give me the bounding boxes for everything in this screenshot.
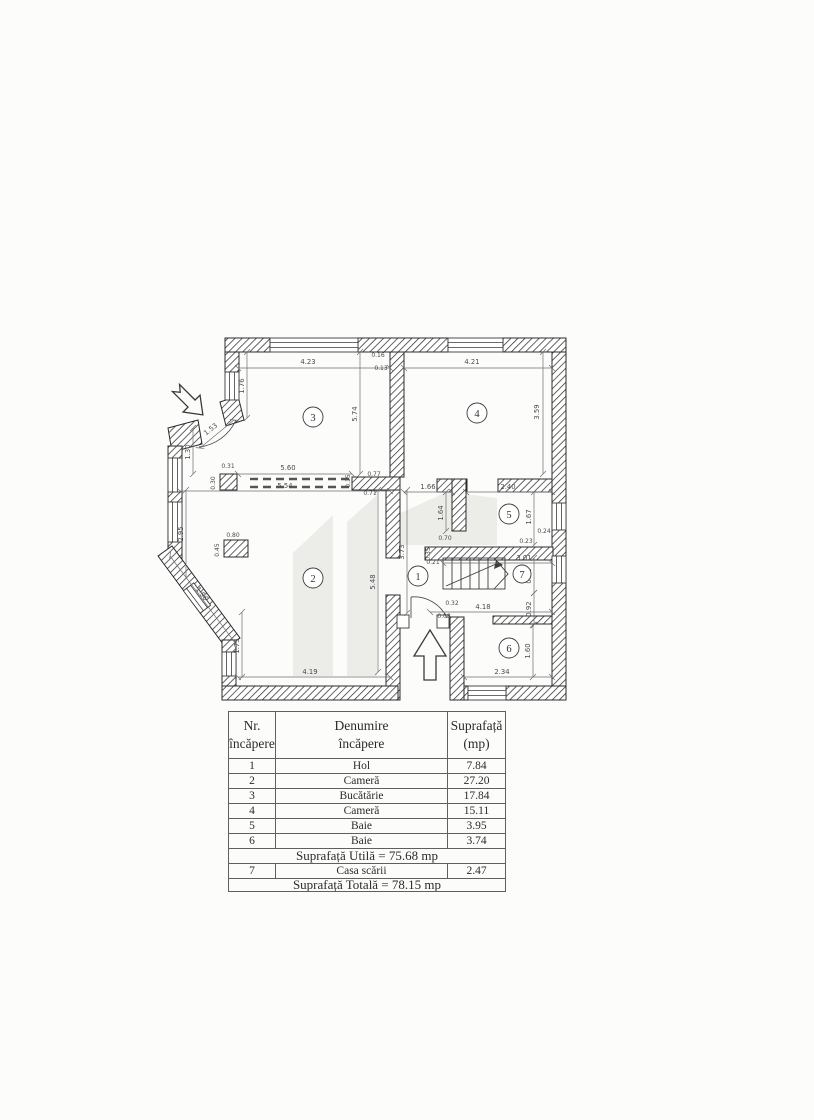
dimension-label: 5.74 <box>351 406 359 421</box>
dimension-label: 0.15 <box>345 474 352 488</box>
dimension-label: 0.80 <box>226 532 240 539</box>
cell-mp: 27.20 <box>448 774 506 789</box>
dimension-label: 4.19 <box>302 668 317 676</box>
table-row: 2 Cameră 27.20 <box>229 774 506 789</box>
svg-text:5: 5 <box>506 510 511 521</box>
wall-segment <box>220 474 237 490</box>
dimension-label: 2.95 <box>177 526 185 541</box>
cell-mp: 15.11 <box>448 804 506 819</box>
cell-mp: 3.95 <box>448 819 506 834</box>
window <box>552 503 566 530</box>
header-suprafata: Suprafață(mp) <box>448 712 506 759</box>
svg-text:6: 6 <box>506 644 511 655</box>
cell-nr: 4 <box>229 804 276 819</box>
table-row: 7 Casa scării 2.47 <box>229 864 506 879</box>
room-label-7: 7 <box>513 565 531 583</box>
table-row: 5 Baie 3.95 <box>229 819 506 834</box>
dimension-label: 1.60 <box>524 643 532 658</box>
dimension-label: 4.21 <box>464 358 479 366</box>
stair-arrowhead <box>494 560 503 569</box>
dimension-label: 0.23 <box>519 538 533 545</box>
cell-mp: 17.84 <box>448 789 506 804</box>
dimension-label: 1.30 <box>184 444 192 459</box>
dimension-label: 0.45 <box>214 543 221 557</box>
cell-denumire: Baie <box>276 819 448 834</box>
dimension-label: 0.32 <box>445 600 459 607</box>
wall-segment <box>452 479 466 531</box>
stair-direction-line <box>446 564 496 586</box>
svg-text:3: 3 <box>310 413 315 424</box>
dimension-label: 0.16 <box>371 352 385 359</box>
room-label-4: 4 <box>467 403 487 423</box>
cell-mp: 7.84 <box>448 759 506 774</box>
dimension-label: 5.48 <box>369 574 377 589</box>
cell-nr: 7 <box>229 864 276 879</box>
dimension-label: 1.64 <box>437 505 445 520</box>
cell-denumire: Baie <box>276 834 448 849</box>
room-label-6: 6 <box>499 638 519 658</box>
window <box>448 338 503 352</box>
cell-denumire: Hol <box>276 759 448 774</box>
window <box>225 372 239 400</box>
cell-denumire: Bucătărie <box>276 789 448 804</box>
wall-segment <box>390 352 404 477</box>
wall-segment <box>493 616 552 624</box>
dimension-label: 1.75 <box>233 638 241 653</box>
table-row: 6 Baie 3.74 <box>229 834 506 849</box>
entrance-arrow-icon <box>168 380 212 424</box>
dimension-label: 0.21 <box>426 559 440 566</box>
cell-denumire: Cameră <box>276 804 448 819</box>
wall-segment <box>506 686 566 700</box>
room-label-2: 2 <box>303 568 323 588</box>
cell-mp: 2.47 <box>448 864 506 879</box>
dashed-wall-line <box>250 479 352 487</box>
cell-denumire: Casa scării <box>276 864 448 879</box>
suprafata-totala: Suprafață Totală = 78.15 mp <box>229 879 506 892</box>
dimension-label: 1.67 <box>525 509 533 524</box>
table-row: 1 Hol 7.84 <box>229 759 506 774</box>
dimension-label: 5.60 <box>280 464 295 472</box>
header-nr: Nr.încăpere <box>229 712 276 759</box>
entry-direction-arrow-icon <box>414 630 446 680</box>
dimension-label: 0.31 <box>221 463 235 470</box>
wall-segment <box>352 477 400 490</box>
header-denumire: Denumireîncăpere <box>276 712 448 759</box>
area-table: Nr.încăpere Denumireîncăpere Suprafață(m… <box>228 711 506 892</box>
dimension-label: 0.13 <box>374 365 388 372</box>
dimension-label: 1.76 <box>238 378 246 393</box>
cell-denumire: Cameră <box>276 774 448 789</box>
dimension-label: 3.73 <box>398 544 406 559</box>
dimension-label: 1.66 <box>420 483 435 491</box>
dimension-label: 0.77 <box>367 471 381 478</box>
suprafata-utila: Suprafață Utilă = 75.68 mp <box>229 849 506 864</box>
room-label-3: 3 <box>303 407 323 427</box>
window <box>468 686 506 700</box>
window <box>270 338 358 352</box>
chimney-block <box>224 540 248 557</box>
total-row: Suprafață Totală = 78.15 mp <box>229 879 506 892</box>
svg-text:4: 4 <box>474 409 480 420</box>
svg-text:2: 2 <box>310 574 315 585</box>
cell-nr: 6 <box>229 834 276 849</box>
table-row: 3 Bucătărie 17.84 <box>229 789 506 804</box>
table-row: 4 Cameră 15.11 <box>229 804 506 819</box>
subtotal-row: Suprafață Utilă = 75.68 mp <box>229 849 506 864</box>
cell-nr: 3 <box>229 789 276 804</box>
wall-segment <box>358 338 448 352</box>
cell-mp: 3.74 <box>448 834 506 849</box>
svg-text:7: 7 <box>519 570 524 581</box>
wall-segment <box>225 338 270 352</box>
dimension-label: 0.08 <box>437 613 451 620</box>
dimension-label: 5.54 <box>277 482 292 490</box>
wall-segment <box>225 352 239 372</box>
cell-nr: 5 <box>229 819 276 834</box>
dimension-label: 4.23 <box>300 358 315 366</box>
scanned-floor-plan-page: 4.23 4.21 5.60 5.54 1.66 2.40 3.01 4.18 … <box>0 0 814 1120</box>
window <box>552 556 566 583</box>
room-label-5: 5 <box>499 504 519 524</box>
room-label-1: 1 <box>408 566 428 586</box>
dimension-label: 4.18 <box>475 603 490 611</box>
cell-nr: 2 <box>229 774 276 789</box>
dimension-label: 3.01 <box>516 554 531 562</box>
dimension-label: 0.92 <box>525 601 533 616</box>
wall-segment <box>386 595 400 700</box>
dimension-label: 2.34 <box>494 668 509 676</box>
dimension-label: 0.71 <box>363 490 377 497</box>
dimension-label: 0.70 <box>438 535 452 542</box>
dimension-label: 2.40 <box>500 483 515 491</box>
dimension-label: 0.30 <box>210 476 217 490</box>
wall-segment <box>222 686 398 700</box>
table-header-row: Nr.încăpere Denumireîncăpere Suprafață(m… <box>229 712 506 759</box>
svg-text:1: 1 <box>415 572 420 583</box>
floor-plan-drawing: 4.23 4.21 5.60 5.54 1.66 2.40 3.01 4.18 … <box>0 0 814 1120</box>
dimension-label: 1.53 <box>202 422 219 438</box>
dimension-label: 0.24 <box>537 528 551 535</box>
wall-segment <box>450 617 464 700</box>
wall-segment <box>503 338 566 352</box>
dimension-label: 3.59 <box>533 404 541 419</box>
window <box>222 652 236 676</box>
window <box>168 458 182 492</box>
cell-nr: 1 <box>229 759 276 774</box>
